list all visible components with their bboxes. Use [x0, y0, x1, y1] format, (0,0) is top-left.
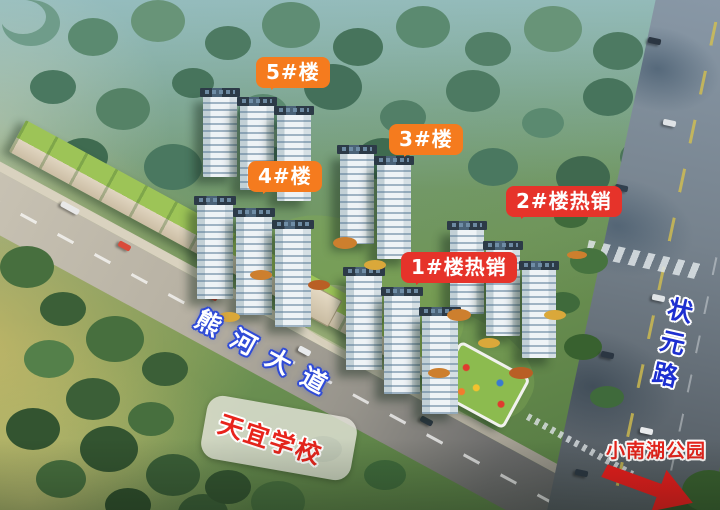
residential-tower-5a [203, 95, 237, 177]
residential-tower-1c [422, 314, 458, 414]
building-badge-4: 4#楼 [248, 161, 322, 192]
residential-tower-4c [275, 227, 311, 327]
arrow-shaft [601, 464, 666, 498]
aerial-site-rendering: 5#楼 3#楼 4#楼 2#楼热销 1#楼热销 熊河大道 状元路 天宜学校 小南… [0, 0, 720, 510]
residential-tower-1b [384, 294, 420, 394]
building-badge-5: 5#楼 [256, 57, 330, 88]
residential-tower-3b [377, 163, 411, 259]
residential-tower-2c [522, 268, 556, 358]
building-badge-1-hot: 1#楼热销 [401, 252, 517, 283]
building-badge-2-hot: 2#楼热销 [506, 186, 622, 217]
residential-tower-4b [236, 215, 272, 315]
building-badge-3: 3#楼 [389, 124, 463, 155]
forest-canopy-south [0, 0, 46, 34]
residential-tower-4a [197, 203, 233, 299]
residential-tower-1a [346, 274, 382, 370]
residential-tower-3a [340, 152, 374, 244]
